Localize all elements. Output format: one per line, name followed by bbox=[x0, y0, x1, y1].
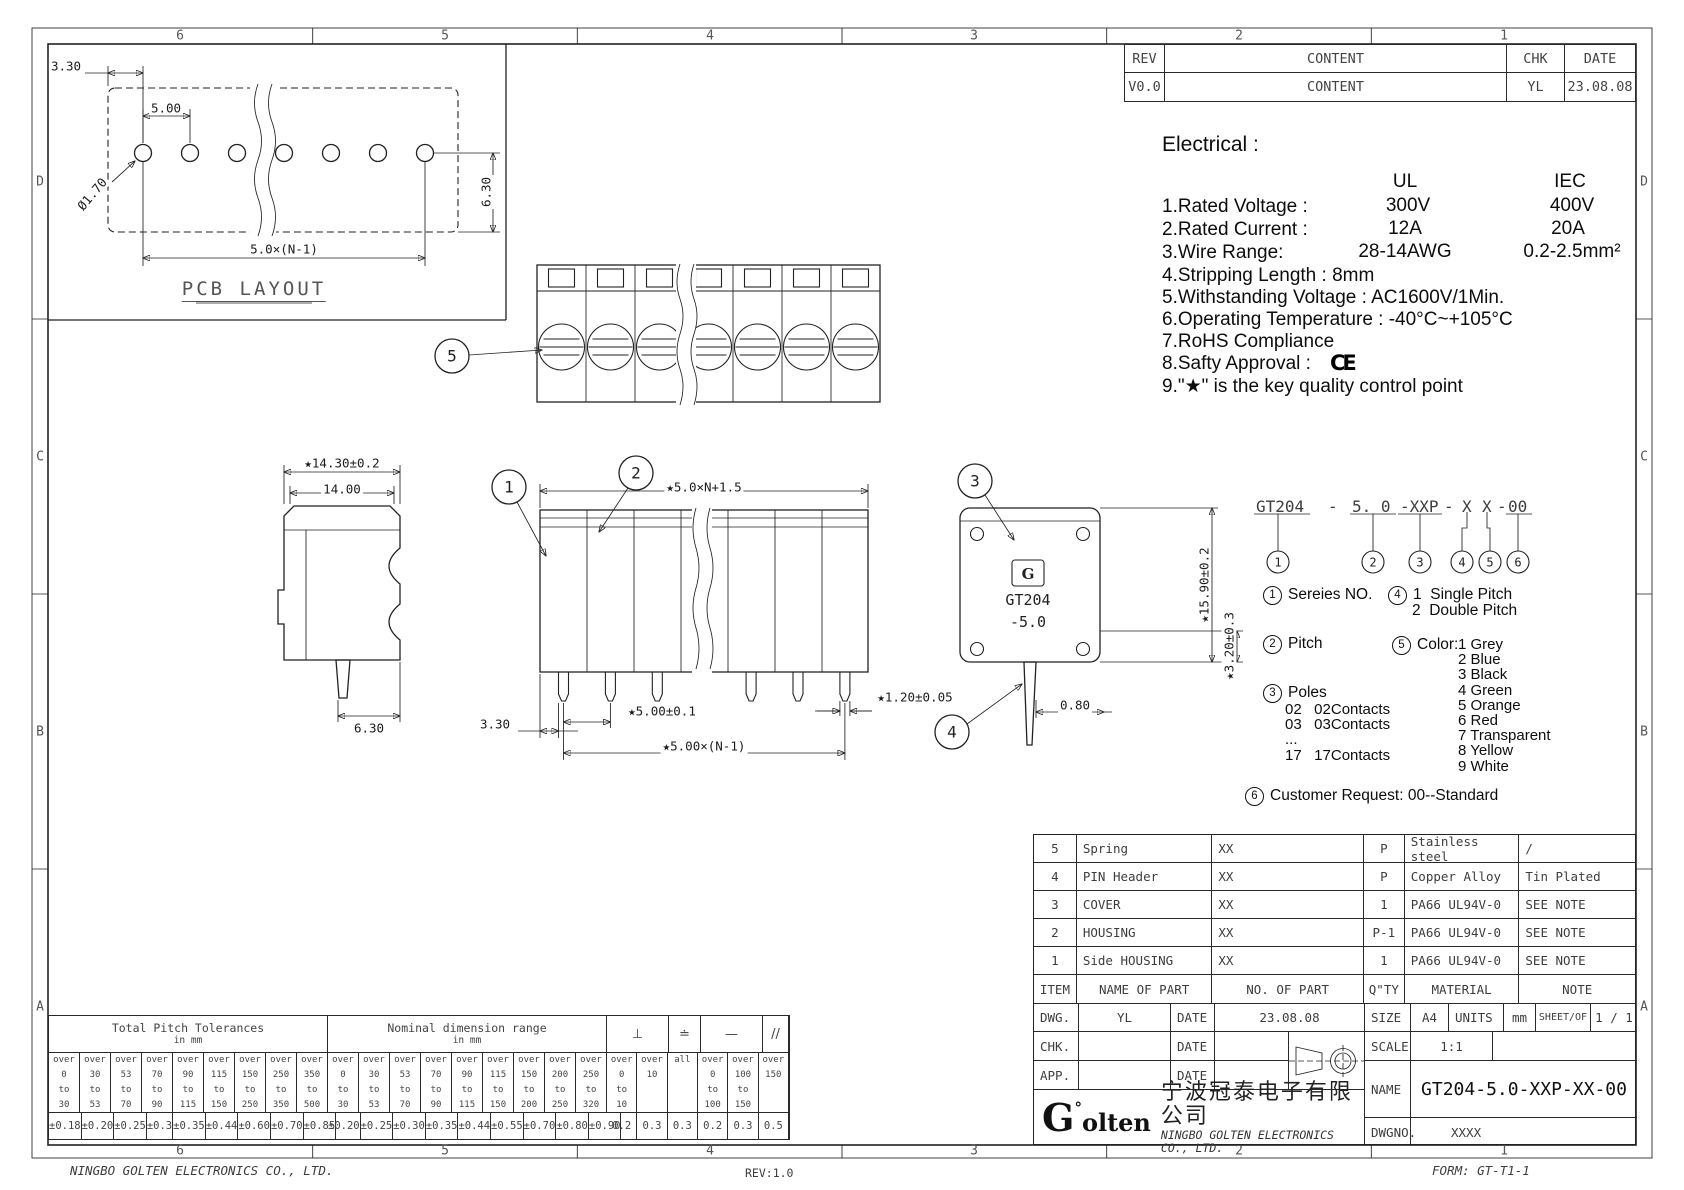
range-col: all bbox=[668, 1053, 698, 1113]
bom-part-name: Side HOUSING bbox=[1077, 947, 1213, 975]
chk-date-label: DATE bbox=[1171, 1032, 1215, 1061]
zone-row-c-left: C bbox=[36, 450, 44, 465]
bom-qty: P-1 bbox=[1364, 919, 1405, 947]
dwg-label: DWG. bbox=[1034, 1004, 1079, 1032]
nominal-ranges: over0to30 over30to53 over53to70 over70to… bbox=[328, 1053, 607, 1113]
company-name-cn: 宁波冠泰电子有限公司 bbox=[1161, 1081, 1364, 1129]
coplanarity-icon: ≐ bbox=[669, 1016, 701, 1053]
logo-cell: G ° olten 宁波冠泰电子有限公司 NINGBO GOLTEN ELECT… bbox=[1034, 1090, 1365, 1146]
legend-pitch-type-2: 2 Double Pitch bbox=[1412, 602, 1517, 620]
zone-col-3-bottom: 3 bbox=[970, 1144, 978, 1159]
bom-row: 3 COVER XX 1 PA66 UL94V-0 SEE NOTE bbox=[1034, 891, 1635, 919]
range-col: over90to115 bbox=[173, 1053, 204, 1113]
range-col: over0to100 bbox=[698, 1053, 728, 1113]
bom-part-no: XX bbox=[1212, 947, 1364, 975]
bom-item: 5 bbox=[1034, 835, 1077, 863]
marker-6: 6 bbox=[1514, 556, 1521, 570]
bom-header-name: NAME OF PART bbox=[1077, 975, 1213, 1004]
company-name-en: NINGBO GOLTEN ELECTRONICS CO., LTD. bbox=[1161, 1129, 1364, 1155]
zone-col-2-top: 2 bbox=[1235, 29, 1243, 44]
range-col: over0to30 bbox=[328, 1053, 359, 1113]
bom-qty: 1 bbox=[1364, 947, 1405, 975]
side-dim-14-30: ★14.30±0.2 bbox=[302, 456, 381, 471]
size-value: A4 bbox=[1411, 1004, 1449, 1032]
bom-part-name: COVER bbox=[1077, 891, 1213, 919]
callout-1-label: 1 bbox=[504, 478, 514, 497]
operating-temperature-line: 6.Operating Temperature : -40°C~+105°C bbox=[1162, 309, 1513, 331]
bom-row: 1 Side HOUSING XX 1 PA66 UL94V-0 SEE NOT… bbox=[1034, 947, 1635, 975]
range-col: over70to90 bbox=[142, 1053, 173, 1113]
tolerance-value: ±0.35 bbox=[173, 1113, 206, 1139]
safety-approval-line: 8.Safty Approval : bbox=[1162, 353, 1311, 375]
date-col-header: DATE bbox=[1565, 45, 1635, 73]
range-col: over0to10 bbox=[607, 1053, 637, 1113]
size-label: SIZE bbox=[1365, 1004, 1411, 1032]
tolerance-header-row: Total Pitch Tolerances in mm Nominal dim… bbox=[49, 1016, 789, 1053]
legend-color-num: 5 bbox=[1392, 636, 1411, 655]
part-code-x1: X bbox=[1462, 497, 1472, 516]
bom-item: 4 bbox=[1034, 863, 1077, 891]
nominal-values: ±0.20±0.25±0.30±0.35±0.44±0.55±0.70±0.80… bbox=[328, 1113, 607, 1139]
tolerance-value: ±0.44 bbox=[206, 1113, 239, 1139]
nominal-range-header: Nominal dimension range in mm bbox=[328, 1016, 607, 1053]
chk-label: CHK. bbox=[1034, 1032, 1079, 1061]
pcb-dim-6-30: 6.30 bbox=[479, 175, 494, 209]
chk-col-header: CHK bbox=[1507, 45, 1565, 73]
rated-current-label: 2.Rated Current : bbox=[1162, 219, 1308, 241]
bom-row: 4 PIN Header XX P Copper Alloy Tin Plate… bbox=[1034, 863, 1635, 891]
tolerance-value: 0.5 bbox=[759, 1113, 789, 1139]
tolerance-value: ±0.25 bbox=[114, 1113, 147, 1139]
legend-series: 1 Sereies NO. bbox=[1263, 586, 1372, 605]
electrical-title: Electrical : bbox=[1162, 133, 1259, 157]
content-value: CONTENT bbox=[1165, 73, 1507, 101]
bom-part-no: XX bbox=[1212, 919, 1364, 947]
pcb-layout-title: PCB LAYOUT bbox=[182, 278, 326, 302]
legend-pitch-type-num: 4 bbox=[1388, 586, 1407, 605]
bom-item: 1 bbox=[1034, 947, 1077, 975]
dwgno-label: DWGNO. bbox=[1365, 1118, 1411, 1146]
part-code-diagram: 1 2 3 4 5 6 bbox=[1254, 512, 1532, 573]
bom-row: 2 HOUSING XX P-1 PA66 UL94V-0 SEE NOTE bbox=[1034, 919, 1635, 947]
chk-date-value bbox=[1215, 1032, 1289, 1061]
logo-g: G bbox=[1042, 1099, 1074, 1137]
rated-voltage-iec: 400V bbox=[1550, 195, 1594, 217]
bom-item: 3 bbox=[1034, 891, 1077, 919]
legend-color-item: 8 Yellow bbox=[1458, 743, 1551, 758]
legend-pitch-text: Pitch bbox=[1288, 635, 1322, 653]
dwg-date-label: DATE bbox=[1171, 1004, 1215, 1032]
bom-material: PA66 UL94V-0 bbox=[1405, 891, 1520, 919]
revision-row: V0.0 CONTENT YL 23.08.08 bbox=[1125, 73, 1635, 101]
dwg-date-value: 23.08.08 bbox=[1215, 1004, 1365, 1032]
tolerance-table: Total Pitch Tolerances in mm Nominal dim… bbox=[48, 1015, 790, 1140]
callout-4-label: 4 bbox=[947, 723, 957, 742]
legend-customer: 6 Customer Request: 00--Standard bbox=[1245, 787, 1498, 806]
legend-poles-item: ... bbox=[1285, 732, 1390, 747]
electrical-col-ul: UL bbox=[1393, 171, 1417, 193]
bom-part-no: XX bbox=[1212, 835, 1364, 863]
bom-note: Tin Plated bbox=[1519, 863, 1635, 891]
zone-col-4-bottom: 4 bbox=[706, 1144, 714, 1159]
nominal-range-sub: in mm bbox=[453, 1035, 482, 1046]
perpendicularity-icon: ⊥ bbox=[607, 1016, 669, 1053]
range-col: over70to90 bbox=[421, 1053, 452, 1113]
legend-poles-item: 17 17Contacts bbox=[1285, 748, 1390, 763]
bom-material: PA66 UL94V-0 bbox=[1405, 947, 1520, 975]
bom-row: 5 Spring XX P Stainless steel / bbox=[1034, 835, 1635, 863]
wire-range-ul: 28-14AWG bbox=[1358, 241, 1451, 263]
wire-range-iec: 0.2-2.5mm² bbox=[1523, 241, 1620, 263]
bom-note: SEE NOTE bbox=[1519, 891, 1635, 919]
callout-5-label: 5 bbox=[447, 347, 457, 366]
bom-qty: P bbox=[1364, 863, 1405, 891]
bom-header-material: MATERIAL bbox=[1405, 975, 1520, 1004]
dwgno-value: XXXX bbox=[1411, 1118, 1637, 1146]
zone-row-b-left: B bbox=[36, 725, 44, 740]
range-col: over0to30 bbox=[49, 1053, 80, 1113]
tolerance-value: 0.3 bbox=[637, 1113, 667, 1139]
bom-part-no: XX bbox=[1212, 863, 1364, 891]
bom-title-block: 5 Spring XX P Stainless steel / 4 PIN He… bbox=[1033, 834, 1636, 1145]
legend-color-list: 1 Grey2 Blue3 Black4 Green5 Orange6 Red7… bbox=[1458, 637, 1551, 774]
bom-rows: 5 Spring XX P Stainless steel / 4 PIN He… bbox=[1034, 835, 1635, 975]
nominal-range-title: Nominal dimension range bbox=[387, 1022, 546, 1035]
units-value: mm bbox=[1504, 1004, 1536, 1032]
legend-poles-item: 02 02Contacts bbox=[1285, 702, 1390, 717]
bom-header-qty: Q"TY bbox=[1364, 975, 1405, 1004]
long-dim-pitch-total: ★5.00×(N-1) bbox=[661, 739, 748, 754]
date-value: 23.08.08 bbox=[1565, 73, 1635, 101]
bom-note: SEE NOTE bbox=[1519, 919, 1635, 947]
range-col: over150to250 bbox=[235, 1053, 266, 1113]
pcb-dim-3-30: 3.30 bbox=[49, 59, 83, 74]
bom-material: Copper Alloy bbox=[1405, 863, 1520, 891]
zone-col-4-top: 4 bbox=[706, 29, 714, 44]
key-quality-line: 9."★" is the key quality control point bbox=[1162, 375, 1463, 398]
range-col: over53to70 bbox=[390, 1053, 421, 1113]
bom-part-no: XX bbox=[1212, 891, 1364, 919]
part-code-dash-2: - bbox=[1444, 497, 1454, 516]
part-code-pitch: 5. 0 bbox=[1352, 497, 1391, 516]
part-code-customer: 00 bbox=[1508, 497, 1527, 516]
legend-color-item: 5 Orange bbox=[1458, 698, 1551, 713]
content-col-header: CONTENT bbox=[1165, 45, 1507, 73]
legend-color-item: 3 Black bbox=[1458, 667, 1551, 682]
long-dim-overall: ★5.0×N+1.5 bbox=[664, 480, 743, 495]
range-col: over53to70 bbox=[111, 1053, 142, 1113]
app-label: APP. bbox=[1034, 1061, 1079, 1090]
side-view bbox=[278, 465, 400, 722]
tolerance-value: ±0.80 bbox=[556, 1113, 589, 1139]
rated-voltage-ul: 300V bbox=[1386, 195, 1430, 217]
bom-qty: 1 bbox=[1364, 891, 1405, 919]
end-view-logo-g: G bbox=[1022, 565, 1035, 583]
bom-part-name: Spring bbox=[1077, 835, 1213, 863]
rohs-line: 7.RoHS Compliance bbox=[1162, 331, 1334, 353]
wire-range-label: 3.Wire Range: bbox=[1162, 242, 1283, 264]
legend-poles-text: Poles bbox=[1288, 684, 1327, 702]
pcb-dim-5-00: 5.00 bbox=[149, 101, 183, 116]
tolerance-value: ±0.70 bbox=[524, 1113, 557, 1139]
pitch-tolerance-sub: in mm bbox=[174, 1035, 203, 1046]
range-col: over90to115 bbox=[452, 1053, 483, 1113]
logo-mark: ° bbox=[1074, 1099, 1082, 1117]
zone-col-3-top: 3 bbox=[970, 29, 978, 44]
long-dim-3-30: 3.30 bbox=[478, 717, 512, 732]
pitch-tolerance-values: ±0.18±0.20±0.25±0.3±0.35±0.44±0.60±0.70±… bbox=[49, 1113, 328, 1139]
marker-3: 3 bbox=[1416, 556, 1423, 570]
bom-qty: P bbox=[1364, 835, 1405, 863]
tolerance-value: 0.3 bbox=[728, 1113, 758, 1139]
end-dim-0-80: 0.80 bbox=[1058, 698, 1092, 713]
range-col: over115to150 bbox=[204, 1053, 235, 1113]
part-name-value: GT204-5.0-XXP-XX-00 bbox=[1411, 1061, 1637, 1118]
legend-pitch-num: 2 bbox=[1263, 635, 1282, 654]
pitch-tolerance-title: Total Pitch Tolerances bbox=[112, 1022, 264, 1035]
end-dim-3-20: ★3.20±0.3 bbox=[1222, 610, 1237, 682]
long-dim-pin-width: ★1.20±0.05 bbox=[875, 690, 954, 705]
part-code-poles: -XXP bbox=[1400, 497, 1439, 516]
bom-item: 2 bbox=[1034, 919, 1077, 947]
tolerance-value: ±0.20 bbox=[328, 1113, 361, 1139]
zone-col-1-top: 1 bbox=[1500, 29, 1508, 44]
end-dim-15-90: ★15.90±0.2 bbox=[1197, 545, 1212, 624]
tolerance-value: ±0.25 bbox=[361, 1113, 394, 1139]
drawing-sheet: 5 1 2 bbox=[0, 0, 1684, 1190]
zone-col-5-top: 5 bbox=[441, 29, 449, 44]
range-col: over200to250 bbox=[545, 1053, 576, 1113]
rated-current-ul: 12A bbox=[1388, 218, 1422, 240]
bom-part-name: HOUSING bbox=[1077, 919, 1213, 947]
bom-header-note: NOTE bbox=[1519, 975, 1635, 1004]
rated-voltage-label: 1.Rated Voltage : bbox=[1162, 196, 1308, 218]
legend-color-text: Color: bbox=[1417, 636, 1458, 654]
bom-header-no: NO. OF PART bbox=[1212, 975, 1364, 1004]
scale-spare bbox=[1493, 1032, 1637, 1061]
footer-form: FORM: GT-T1-1 bbox=[1432, 1163, 1530, 1178]
front-view: 5 bbox=[435, 262, 880, 405]
zone-row-c-right: C bbox=[1640, 450, 1648, 465]
legend-color-item: 2 Blue bbox=[1458, 652, 1551, 667]
tolerance-value: ±0.60 bbox=[238, 1113, 271, 1139]
dwg-by: YL bbox=[1079, 1004, 1171, 1032]
range-col: over250to320 bbox=[576, 1053, 607, 1113]
zone-col-5-bottom: 5 bbox=[441, 1144, 449, 1159]
tolerance-value: ±0.30 bbox=[393, 1113, 426, 1139]
withstanding-voltage-line: 5.Withstanding Voltage : AC1600V/1Min. bbox=[1162, 287, 1504, 309]
zone-row-a-right: A bbox=[1640, 1000, 1648, 1015]
tolerance-value: 0.2 bbox=[698, 1113, 728, 1139]
tolerance-value: ±0.44 bbox=[458, 1113, 491, 1139]
end-view-pitch-label: -5.0 bbox=[1010, 613, 1046, 631]
pitch-tolerance-ranges: over0to30 over30to53 over53to70 over70to… bbox=[49, 1053, 328, 1113]
pcb-layout-view bbox=[85, 66, 500, 266]
bom-note: / bbox=[1519, 835, 1635, 863]
revision-header-row: REV CONTENT CHK DATE bbox=[1125, 45, 1635, 73]
stripping-length-line: 4.Stripping Length : 8mm bbox=[1162, 265, 1374, 287]
part-code-dash-3: - bbox=[1497, 497, 1507, 516]
tolerance-value: 0.2 bbox=[607, 1113, 637, 1139]
units-label: UNITS bbox=[1449, 1004, 1504, 1032]
chk-value: YL bbox=[1507, 73, 1565, 101]
ce-mark: CE bbox=[1330, 351, 1354, 375]
bom-part-name: PIN Header bbox=[1077, 863, 1213, 891]
side-dim-14-00: 14.00 bbox=[321, 482, 363, 497]
zone-row-d-right: D bbox=[1640, 175, 1648, 190]
range-col: over350to500 bbox=[297, 1053, 328, 1113]
straightness-icon: — bbox=[701, 1016, 763, 1053]
revision-table: REV CONTENT CHK DATE V0.0 CONTENT YL 23.… bbox=[1124, 44, 1636, 102]
tolerance-value: ±0.70 bbox=[271, 1113, 304, 1139]
symbol-ranges: over0to10 over10 all over0to100 over100t… bbox=[607, 1053, 789, 1113]
zone-row-b-right: B bbox=[1640, 725, 1648, 740]
part-code-dash-1: - bbox=[1328, 497, 1338, 516]
range-col: over30to53 bbox=[359, 1053, 390, 1113]
marker-1: 1 bbox=[1274, 556, 1281, 570]
parallelism-icon: // bbox=[763, 1016, 789, 1053]
scale-value: 1:1 bbox=[1411, 1032, 1493, 1061]
rev-col-header: REV bbox=[1125, 45, 1165, 73]
projection-cell bbox=[1289, 1032, 1365, 1061]
pcb-dim-pitch: 5.0×(N-1) bbox=[248, 242, 320, 257]
bom-header-row: ITEM NAME OF PART NO. OF PART Q"TY MATER… bbox=[1034, 975, 1635, 1004]
chk-by bbox=[1079, 1032, 1171, 1061]
marker-5: 5 bbox=[1486, 556, 1493, 570]
bom-material: PA66 UL94V-0 bbox=[1405, 919, 1520, 947]
legend-poles-item: 03 03Contacts bbox=[1285, 717, 1390, 732]
bom-header-item: ITEM bbox=[1034, 975, 1077, 1004]
electrical-col-iec: IEC bbox=[1554, 171, 1586, 193]
tolerance-value: ±0.35 bbox=[426, 1113, 459, 1139]
legend-pitch: 2 Pitch bbox=[1263, 635, 1322, 654]
tolerance-value: ±0.20 bbox=[82, 1113, 115, 1139]
scale-label: SCALE bbox=[1365, 1032, 1411, 1061]
marker-2: 2 bbox=[1369, 556, 1376, 570]
footer-rev: REV:1.0 bbox=[745, 1166, 793, 1180]
part-code-series: GT204 bbox=[1256, 497, 1304, 516]
rev-value: V0.0 bbox=[1125, 73, 1165, 101]
range-col: over115to150 bbox=[483, 1053, 514, 1113]
app-by bbox=[1079, 1061, 1171, 1090]
legend-color-item: 1 Grey bbox=[1458, 637, 1551, 652]
footer-company: NINGBO GOLTEN ELECTRONICS CO., LTD. bbox=[70, 1163, 333, 1178]
range-col: over150to200 bbox=[514, 1053, 545, 1113]
end-view-series-label: GT204 bbox=[1005, 591, 1050, 609]
symbol-values: 0.20.30.30.20.30.5 bbox=[607, 1113, 789, 1139]
side-dim-6-30: 6.30 bbox=[352, 721, 386, 736]
legend-color-item: 7 Transparent bbox=[1458, 728, 1551, 743]
sheet-value: 1 / 1 bbox=[1591, 1004, 1637, 1032]
range-col: over150 bbox=[759, 1053, 789, 1113]
zone-row-a-left: A bbox=[36, 1000, 44, 1015]
part-code-x2: X bbox=[1482, 497, 1492, 516]
legend-series-text: Sereies NO. bbox=[1288, 586, 1372, 604]
tolerance-value: ±0.18 bbox=[49, 1113, 82, 1139]
range-col: over30to53 bbox=[80, 1053, 111, 1113]
legend-customer-text: Customer Request: 00--Standard bbox=[1270, 787, 1498, 805]
tolerance-value: 0.3 bbox=[668, 1113, 698, 1139]
tolerance-value: ±0.55 bbox=[491, 1113, 524, 1139]
pitch-tolerance-header: Total Pitch Tolerances in mm bbox=[49, 1016, 328, 1053]
legend-color-item: 9 White bbox=[1458, 759, 1551, 774]
callout-2-label: 2 bbox=[631, 464, 641, 483]
legend-customer-num: 6 bbox=[1245, 787, 1264, 806]
legend-series-num: 1 bbox=[1263, 586, 1282, 605]
range-col: over10 bbox=[637, 1053, 667, 1113]
legend-color-item: 6 Red bbox=[1458, 713, 1551, 728]
long-dim-5-00: ★5.00±0.1 bbox=[626, 704, 698, 719]
range-col: over250to350 bbox=[266, 1053, 297, 1113]
legend-color-item: 4 Green bbox=[1458, 683, 1551, 698]
legend-poles-list: 02 02Contacts03 03Contacts...17 17Contac… bbox=[1285, 702, 1390, 763]
callout-3-label: 3 bbox=[970, 472, 980, 491]
bom-material: Stainless steel bbox=[1405, 835, 1520, 863]
sheet-label: SHEET/OF bbox=[1536, 1004, 1591, 1032]
legend-poles-num: 3 bbox=[1263, 684, 1282, 703]
bom-note: SEE NOTE bbox=[1519, 947, 1635, 975]
name-label: NAME bbox=[1365, 1061, 1411, 1118]
zone-col-6-bottom: 6 bbox=[176, 1144, 184, 1159]
tolerance-value: ±0.3 bbox=[147, 1113, 173, 1139]
logo-rest: olten bbox=[1082, 1108, 1151, 1137]
range-col: over100to150 bbox=[728, 1053, 758, 1113]
zone-row-d-left: D bbox=[36, 175, 44, 190]
legend-color: 5 Color: bbox=[1392, 636, 1458, 655]
rated-current-iec: 20A bbox=[1551, 218, 1585, 240]
marker-4: 4 bbox=[1458, 556, 1465, 570]
zone-col-6-top: 6 bbox=[176, 29, 184, 44]
